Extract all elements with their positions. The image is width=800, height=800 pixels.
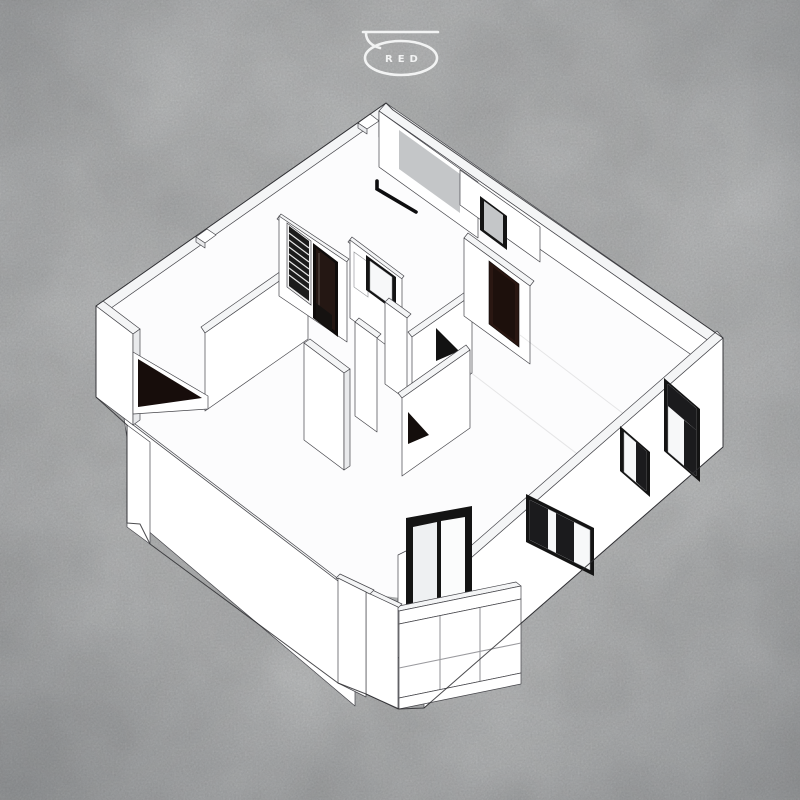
- page: RED: [0, 0, 800, 800]
- scene: RED: [0, 0, 800, 800]
- logo-text: RED: [385, 54, 423, 65]
- bay-post-2-face: [366, 592, 398, 709]
- bay-post-1-face: [338, 578, 366, 697]
- pilaster-lower-strip: [127, 425, 150, 544]
- stub-wall-1-face: [355, 322, 377, 432]
- wardrobe-side: [344, 369, 350, 470]
- stub-wall-2-face: [385, 302, 407, 400]
